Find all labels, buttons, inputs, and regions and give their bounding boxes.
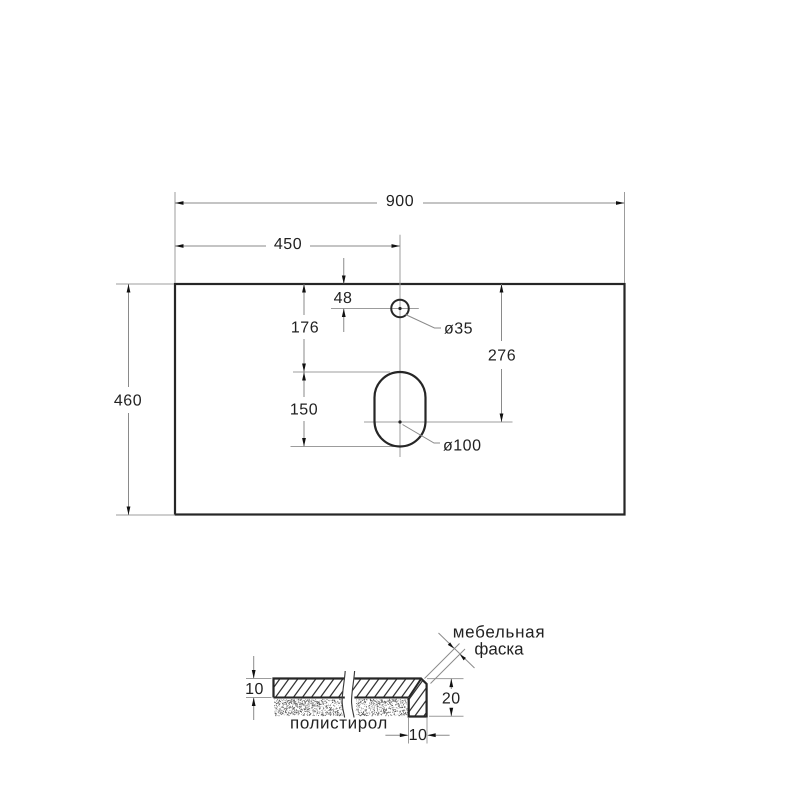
svg-text:полистирол: полистирол [290, 714, 388, 733]
svg-text:10: 10 [409, 727, 428, 744]
svg-text:48: 48 [334, 290, 353, 307]
svg-text:150: 150 [290, 402, 318, 419]
svg-text:10: 10 [245, 681, 264, 698]
svg-text:ø100: ø100 [443, 438, 481, 455]
svg-text:176: 176 [291, 320, 319, 337]
svg-text:фаска: фаска [474, 640, 524, 659]
svg-text:ø35: ø35 [444, 321, 473, 338]
svg-text:460: 460 [114, 393, 142, 410]
svg-text:900: 900 [386, 193, 414, 210]
svg-text:20: 20 [442, 691, 461, 708]
svg-text:276: 276 [488, 348, 516, 365]
svg-text:450: 450 [274, 236, 302, 253]
